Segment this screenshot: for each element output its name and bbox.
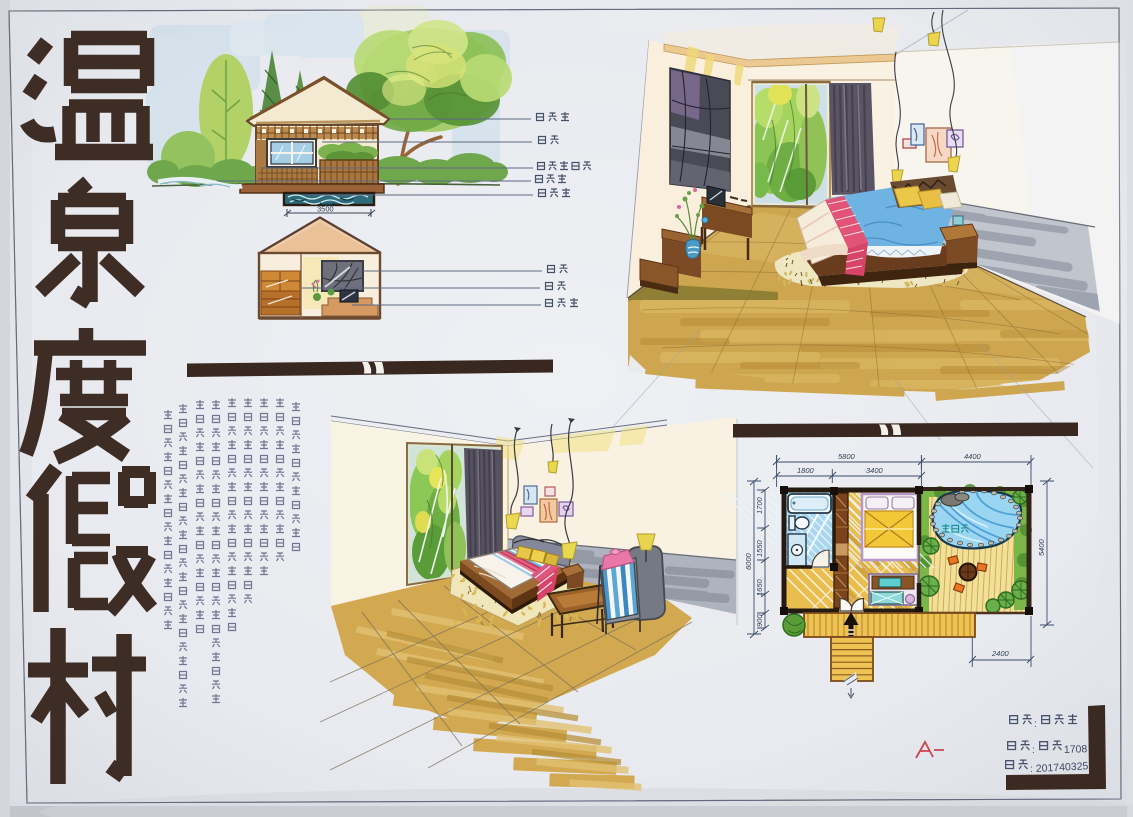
svg-text:900: 900 bbox=[755, 614, 764, 627]
svg-text:3400: 3400 bbox=[866, 466, 884, 475]
svg-text:1700: 1700 bbox=[755, 496, 764, 514]
svg-text:5400: 5400 bbox=[1037, 538, 1046, 556]
svg-text:5800: 5800 bbox=[838, 452, 856, 461]
svg-text:1550: 1550 bbox=[755, 539, 764, 557]
svg-text:1708: 1708 bbox=[1064, 743, 1088, 756]
svg-text:1650: 1650 bbox=[755, 578, 764, 596]
svg-text::: : bbox=[1030, 764, 1033, 775]
svg-text:2400: 2400 bbox=[991, 649, 1010, 658]
svg-text:4400: 4400 bbox=[964, 452, 982, 461]
svg-text:6000: 6000 bbox=[744, 552, 753, 570]
svg-text:1800: 1800 bbox=[797, 466, 815, 475]
svg-text:3500: 3500 bbox=[317, 205, 334, 214]
svg-text::: : bbox=[1034, 719, 1037, 730]
svg-text::: : bbox=[1032, 745, 1035, 756]
